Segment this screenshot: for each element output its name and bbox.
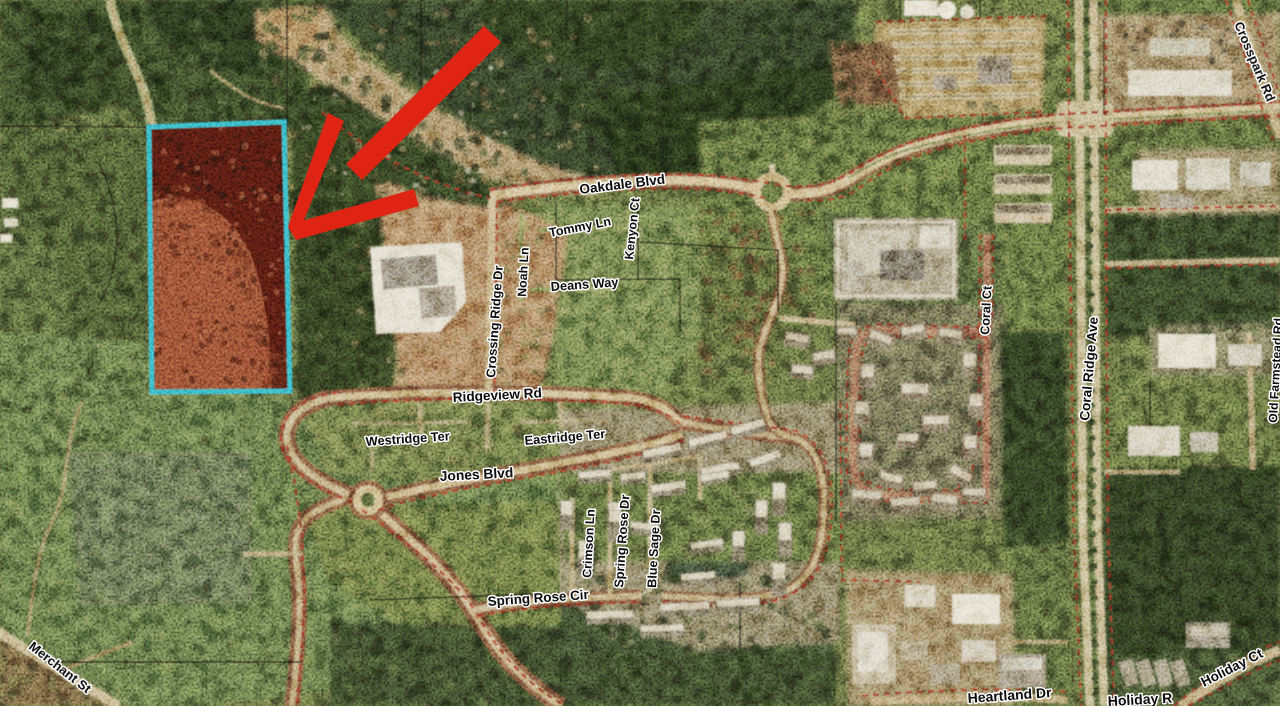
- svg-text:Noah Ln: Noah Ln: [515, 247, 532, 297]
- svg-text:Coral Ct: Coral Ct: [978, 285, 995, 335]
- svg-text:Holiday R: Holiday R: [1107, 690, 1172, 706]
